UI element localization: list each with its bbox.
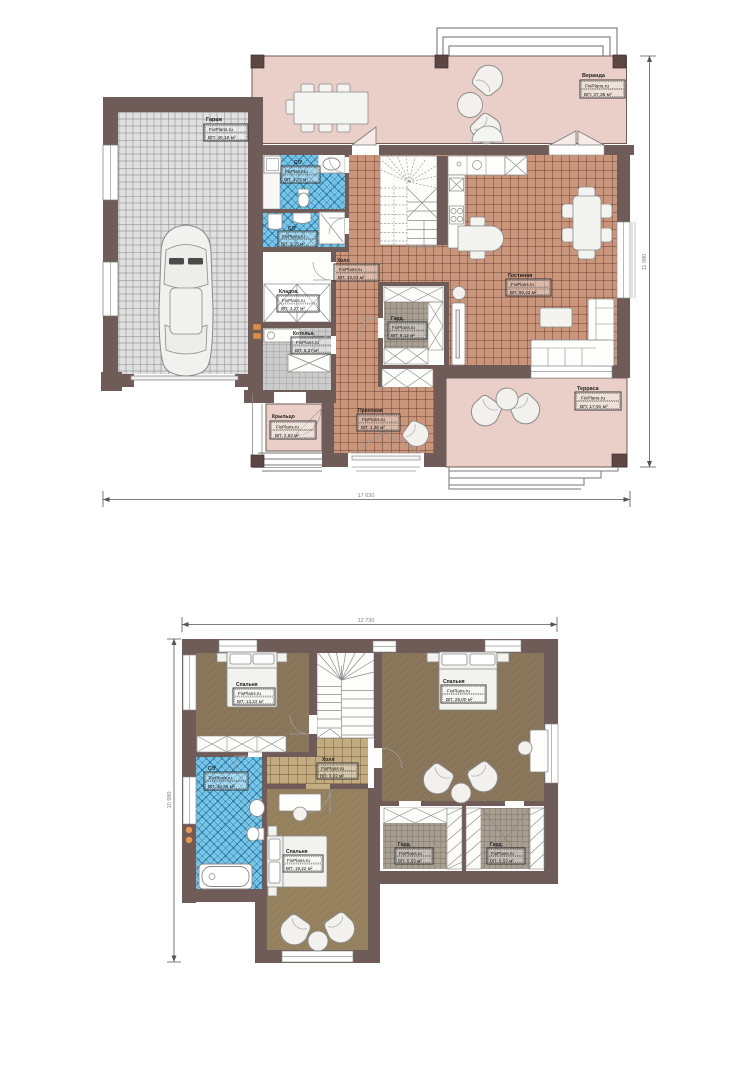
svg-text:Кладов.: Кладов. [279, 289, 299, 295]
svg-text:FixPlans.ru: FixPlans.ru [581, 396, 605, 402]
svg-text:12 730: 12 730 [358, 618, 375, 624]
svg-text:Гостиная: Гостиная [508, 273, 532, 279]
svg-text:Холл: Холл [322, 757, 335, 763]
svg-text:FixPlans.ru: FixPlans.ru [209, 776, 232, 781]
svg-text:FixPlans.ru: FixPlans.ru [282, 298, 305, 303]
svg-text:Гард.: Гард. [490, 842, 504, 848]
svg-text:Терраса: Терраса [577, 386, 600, 392]
svg-text:Веранда: Веранда [582, 73, 606, 79]
svg-text:FixPlans.ru: FixPlans.ru [339, 267, 362, 272]
svg-text:ВП: 40,18 м²: ВП: 40,18 м² [208, 135, 236, 141]
svg-text:FixPlans.ru: FixPlans.ru [585, 84, 609, 90]
svg-text:11 980: 11 980 [642, 254, 648, 270]
svg-text:ВП: 10,56 м²: ВП: 10,56 м² [208, 784, 235, 789]
svg-text:ВП: 3,15 м²: ВП: 3,15 м² [281, 241, 305, 246]
svg-text:ВП: 2,63 м²: ВП: 2,63 м² [275, 433, 299, 438]
svg-text:ВП: 3,27 м²: ВП: 3,27 м² [281, 306, 305, 311]
svg-text:FixPlans.ru: FixPlans.ru [392, 325, 415, 330]
svg-text:FixPlans.ru: FixPlans.ru [276, 425, 299, 430]
svg-text:ВП: 37,36 м²: ВП: 37,36 м² [584, 92, 612, 98]
svg-text:FixPlans.ru: FixPlans.ru [287, 858, 310, 863]
svg-text:ВП: 5,53 м²: ВП: 5,53 м² [398, 858, 422, 863]
svg-text:ВП: 6,12 м²: ВП: 6,12 м² [391, 333, 415, 338]
svg-text:ВП: 13,22 м²: ВП: 13,22 м² [237, 699, 264, 704]
svg-text:Гард.: Гард. [391, 316, 405, 322]
svg-text:Спальня: Спальня [443, 679, 465, 685]
svg-text:FixPlans.ru: FixPlans.ru [491, 851, 514, 856]
svg-text:Спальня: Спальня [286, 849, 308, 855]
svg-text:FixPlans.ru: FixPlans.ru [362, 417, 385, 422]
svg-text:ВП: 5,53 м²: ВП: 5,53 м² [490, 858, 514, 863]
svg-text:ВП: 90,42 м²: ВП: 90,42 м² [510, 290, 537, 295]
svg-text:ВП: 4,38 м²: ВП: 4,38 м² [361, 425, 385, 430]
svg-text:10 980: 10 980 [167, 792, 173, 809]
svg-text:FixPlans.ru: FixPlans.ru [285, 169, 308, 174]
svg-text:17 630: 17 630 [358, 493, 375, 499]
svg-text:ВП: 28,00 м²: ВП: 28,00 м² [446, 697, 473, 702]
svg-text:С/У: С/У [208, 766, 217, 772]
svg-text:ВП: 4,75 м²: ВП: 4,75 м² [284, 177, 308, 182]
svg-text:Прихожая: Прихожая [358, 408, 383, 414]
svg-text:FixPlans.ru: FixPlans.ru [209, 127, 233, 133]
svg-text:Гард.: Гард. [398, 842, 412, 848]
svg-text:ВП: 3,02 м²: ВП: 3,02 м² [320, 773, 344, 778]
svg-text:С/У: С/У [294, 160, 303, 166]
svg-text:FixPlans.ru: FixPlans.ru [321, 766, 344, 771]
svg-text:ВП: 17,91 м²: ВП: 17,91 м² [580, 404, 608, 410]
svg-text:ВП: 10,03 м²: ВП: 10,03 м² [338, 275, 365, 280]
svg-text:ВП: 6,27 м²: ВП: 6,27 м² [295, 348, 319, 353]
svg-text:Крыльцо: Крыльцо [272, 414, 295, 420]
svg-text:Гараж: Гараж [206, 117, 222, 123]
svg-text:FixPlans.ru: FixPlans.ru [447, 689, 470, 694]
svg-text:Котельн.: Котельн. [293, 331, 315, 337]
svg-text:FixPlans.ru: FixPlans.ru [511, 282, 534, 287]
svg-text:ВП: 19,22 м²: ВП: 19,22 м² [286, 866, 313, 871]
svg-text:Холл: Холл [337, 258, 350, 264]
svg-text:FixPlans.ru: FixPlans.ru [238, 691, 261, 696]
svg-text:FixPlans.ru: FixPlans.ru [399, 851, 422, 856]
svg-text:FixPlans.ru: FixPlans.ru [282, 234, 305, 239]
svg-text:Спальня: Спальня [236, 682, 258, 688]
